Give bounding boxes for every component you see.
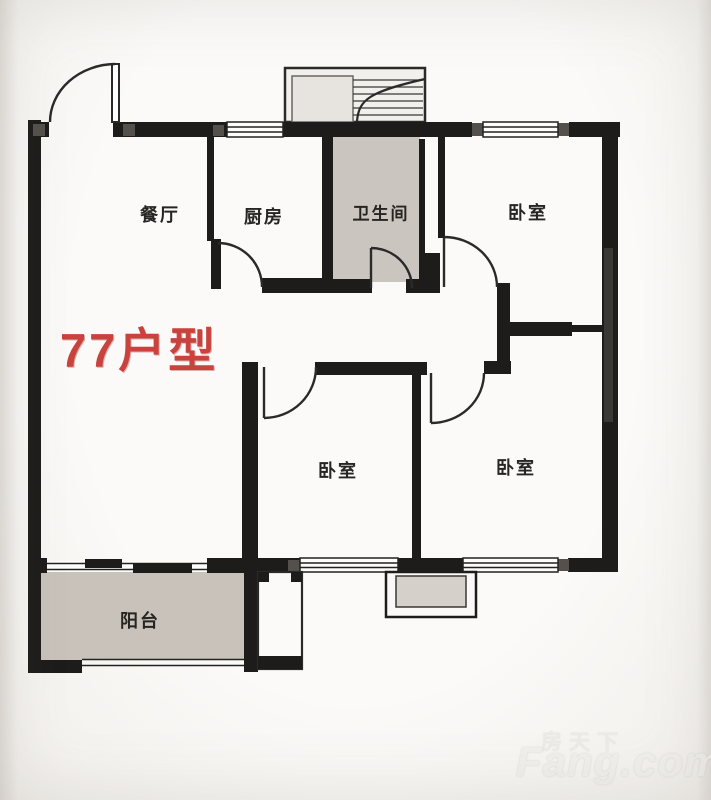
bedroom-br-door <box>431 373 484 423</box>
room-label-bedroom-bottom-right: 卧室 <box>496 454 536 480</box>
wall-bedroom-tr-left <box>438 137 445 238</box>
stairwell <box>285 68 425 122</box>
entry-door <box>50 64 119 122</box>
room-label-bedroom-top-right: 卧室 <box>508 199 548 225</box>
wall-exterior-bottom <box>568 558 618 572</box>
bedroom-tr-door <box>444 237 497 287</box>
wall-bathroom-bottom <box>333 279 372 293</box>
wall-bedrooms-divider-right <box>510 322 572 336</box>
room-label-balcony: 阳台 <box>120 607 160 633</box>
bedroom-br-window <box>463 558 558 572</box>
wall-balcony-right <box>244 558 258 672</box>
wall-bedroom-mid-top <box>315 362 427 375</box>
bedroom-tr-window <box>483 122 558 137</box>
floor-plan-drawing <box>0 0 711 800</box>
duct-shaft <box>258 572 302 669</box>
wall-dining-kitchen <box>207 137 214 241</box>
wall-exterior-left <box>28 120 41 673</box>
kitchen-window <box>227 122 283 137</box>
wall-bedroom-mid-left <box>242 362 258 558</box>
room-label-kitchen: 厨房 <box>244 203 284 229</box>
wall-bathroom-bedroom <box>419 139 425 255</box>
wall-kitchen-bathroom <box>322 137 333 293</box>
wall-balcony-bottom <box>28 660 82 673</box>
ac-platform <box>386 572 476 617</box>
room-label-bedroom-middle: 卧室 <box>318 457 358 483</box>
balcony-sliding-door <box>47 559 207 573</box>
kitchen-door <box>218 243 262 287</box>
wall-kitchen-bottom <box>262 278 330 293</box>
wall-hallway <box>497 283 510 374</box>
balcony-railing <box>82 660 244 666</box>
bedroom-mid-window <box>300 558 398 572</box>
unit-type-title: 77户型 <box>60 312 218 381</box>
room-label-dining: 餐厅 <box>140 201 180 227</box>
wall-bedrooms-divider-mid <box>412 367 421 558</box>
room-label-bathroom: 卫生间 <box>353 200 410 225</box>
floor-plan-photo: 餐厅 厨房 卫生间 卧室 卧室 卧室 阳台 77户型 房天下 Fang.com <box>0 0 711 800</box>
bedroom-mid-door <box>264 367 316 418</box>
